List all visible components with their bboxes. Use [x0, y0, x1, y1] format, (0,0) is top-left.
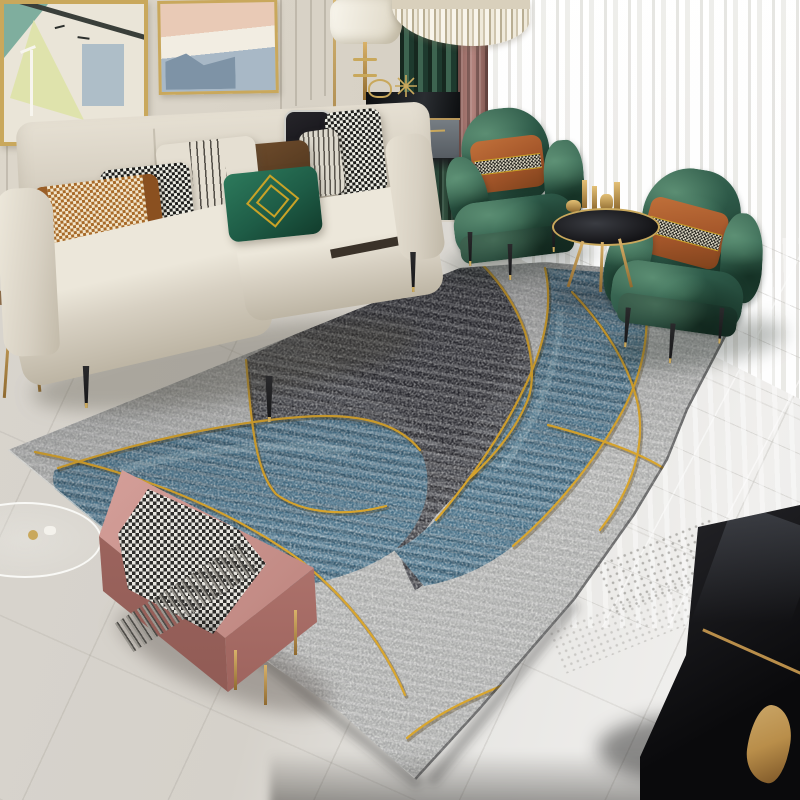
bench-gold-leg: [294, 610, 297, 655]
gold-bottle: [614, 182, 620, 210]
sofa-leg: [260, 376, 278, 422]
side-table-leg: [599, 242, 604, 292]
living-room-scene: [0, 0, 800, 800]
beige-sofa: [0, 0, 460, 440]
houndstooth-throw-blanket: [118, 484, 278, 660]
side-table-leg: [618, 238, 633, 287]
brass-sculpture: [743, 702, 795, 785]
sofa-armrest-left: [0, 187, 60, 358]
bench-gold-leg: [264, 665, 267, 705]
gold-candlestick: [582, 180, 587, 208]
side-table-leg: [567, 241, 585, 288]
gold-candlestick: [592, 186, 597, 210]
side-table-top: [552, 208, 660, 246]
green-gold-diamond-pillow: [223, 165, 324, 242]
round-gold-side-table: [552, 178, 664, 314]
